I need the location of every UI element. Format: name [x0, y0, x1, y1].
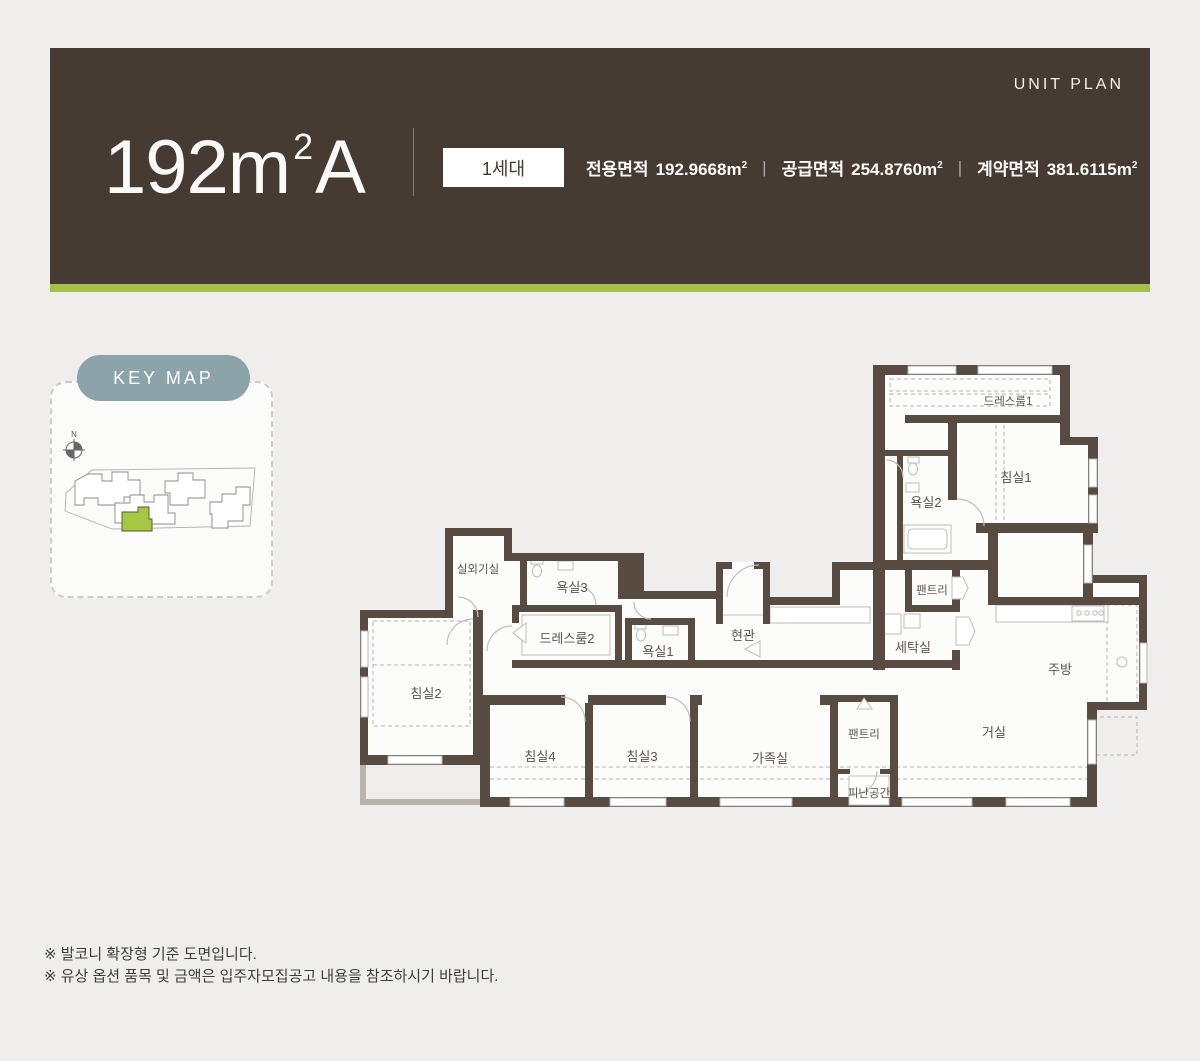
room-label-bath3: 욕실3 [556, 580, 587, 595]
area-separator: | [762, 158, 766, 178]
room-label-pantry-upper: 팬트리 [916, 584, 948, 597]
footnotes: ※ 발코니 확장형 기준 도면입니다. ※ 유상 옵션 품목 및 금액은 입주자… [44, 944, 498, 988]
compass-icon: N [63, 430, 85, 461]
household-badge: 1세대 [443, 148, 564, 187]
room-label-pantry-lower: 팬트리 [848, 728, 880, 741]
area-contract-label: 계약면적 [977, 160, 1040, 179]
area-supply: 공급면적254.8760m2 [782, 155, 943, 180]
balcony-step [360, 765, 482, 805]
unit-plan-header: UNIT PLAN 192m2A 1세대 전용면적192.9668m2 | 공급… [50, 48, 1150, 284]
area-supply-value: 254.8760 [851, 160, 922, 179]
room-label-family-room: 가족실 [752, 751, 788, 766]
area-contract-unit: m [1117, 160, 1132, 179]
footnote-balcony: ※ 발코니 확장형 기준 도면입니다. [44, 944, 498, 966]
room-label-kitchen: 주방 [1048, 662, 1072, 677]
room-label-laundry: 세탁실 [895, 640, 931, 655]
room-label-dressroom1: 드레스룸1 [984, 395, 1033, 408]
room-label-dressroom2: 드레스룸2 [539, 631, 594, 646]
area-contract-value: 381.6115 [1047, 160, 1117, 179]
room-label-bedroom3: 침실3 [626, 749, 657, 764]
area-exclusive: 전용면적192.9668m2 [586, 155, 747, 180]
room-label-living-room: 거실 [982, 725, 1006, 740]
room-label-bedroom2: 침실2 [410, 686, 441, 701]
accent-line [50, 284, 1150, 292]
footnote-options: ※ 유상 옵션 품목 및 금액은 입주자모집공고 내용을 참조하시기 바랍니다. [44, 966, 498, 988]
keymap-title: KEY MAP [77, 355, 250, 401]
room-label-bedroom4: 침실4 [524, 749, 555, 764]
floor-plan: 드레스룸1 침실1 욕실2 팬트리 세탁실 주방 현관 욕실1 드레스룸2 욕실… [360, 365, 1160, 815]
title-main: 192m [104, 125, 290, 210]
area-supply-label: 공급면적 [782, 160, 845, 179]
room-label-bath2: 욕실2 [910, 495, 941, 510]
room-label-bedroom1: 침실1 [1000, 470, 1031, 485]
area-separator: | [958, 158, 962, 178]
title-suffix: A [315, 125, 365, 210]
page-title: 192m2A [104, 130, 365, 206]
unit-plan-label: UNIT PLAN [1014, 76, 1124, 94]
keymap-site-plan: N [50, 381, 273, 598]
room-label-entrance: 현관 [731, 628, 755, 643]
area-exclusive-unit: m [726, 160, 741, 179]
title-superscript: 2 [293, 126, 312, 167]
title-divider [413, 128, 414, 196]
room-label-outdoor-unit: 실외기실 [457, 563, 499, 576]
area-info: 전용면적192.9668m2 | 공급면적254.8760m2 | 계약면적38… [586, 148, 1137, 187]
room-label-refuge-space: 피난공간 [848, 787, 891, 800]
room-label-bath1: 욕실1 [642, 644, 673, 659]
area-exclusive-value: 192.9668 [656, 160, 727, 179]
area-exclusive-label: 전용면적 [586, 160, 649, 179]
area-contract: 계약면적381.6115m2 [977, 155, 1137, 180]
compass-n-label: N [71, 430, 77, 439]
area-supply-unit: m [922, 160, 937, 179]
site-buildings [75, 472, 250, 531]
